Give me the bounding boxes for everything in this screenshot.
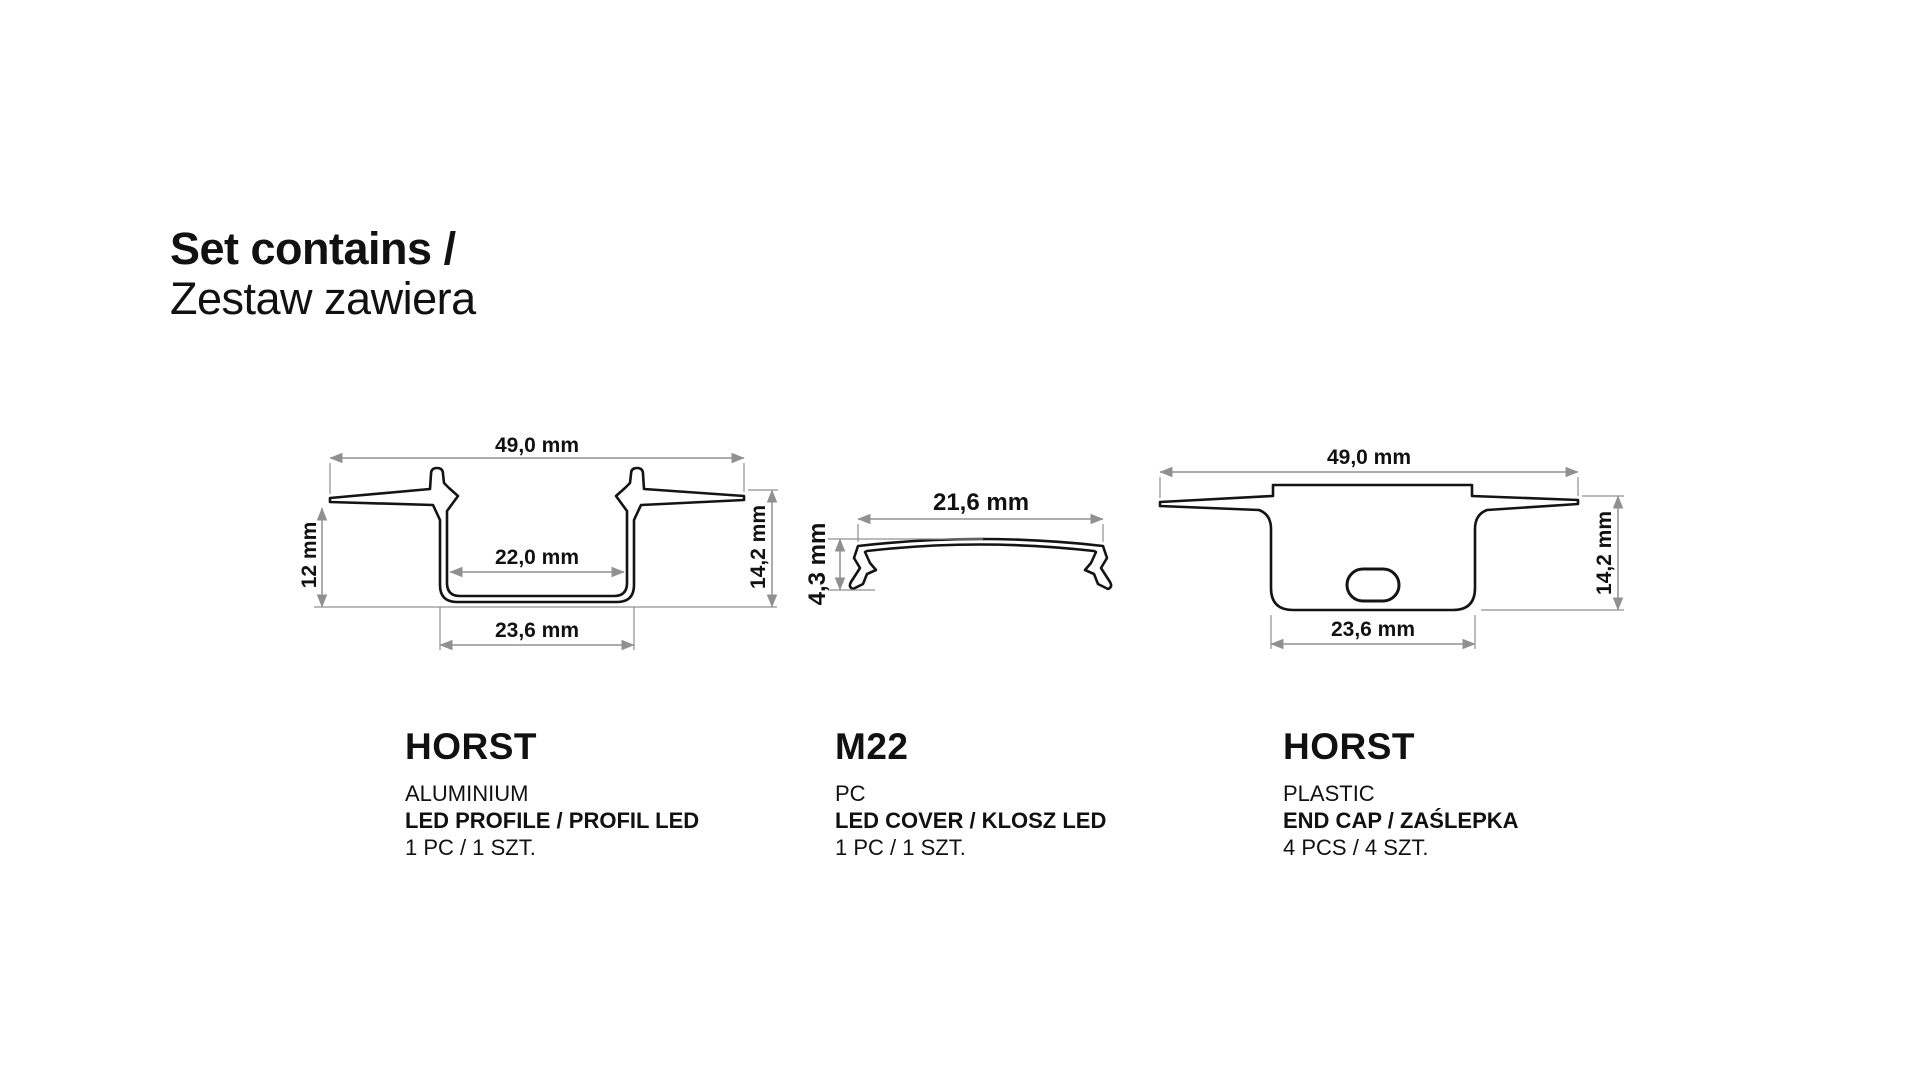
item-name: M22 — [835, 726, 1235, 768]
item-material: ALUMINIUM — [405, 780, 805, 807]
dim-label-bottom-width: 23,6 mm — [495, 619, 579, 642]
dim-label-height: 14,2 mm — [747, 505, 770, 589]
item-material: PLASTIC — [1283, 780, 1683, 807]
dim-label-width: 49,0 mm — [495, 434, 579, 457]
horst-profile-drawing: 49,0 mm 12 mm 22,0 mm 23,6 mm 14,2 mm — [300, 425, 800, 660]
item-label-endcap: HORST PLASTIC END CAP / ZAŚLEPKA 4 PCS /… — [1283, 726, 1683, 861]
dim-label-inner-width: 22,0 mm — [495, 546, 579, 569]
dim-label-depth: 12 mm — [300, 522, 321, 589]
page-title-en: Set contains / — [170, 224, 476, 274]
item-quantity: 1 PC / 1 SZT. — [835, 834, 1235, 861]
figure-horst-profile: 49,0 mm 12 mm 22,0 mm 23,6 mm 14,2 mm — [300, 425, 800, 665]
item-type: END CAP / ZAŚLEPKA — [1283, 807, 1683, 834]
figure-m22-cover: 21,6 mm 4,3 mm — [800, 430, 1150, 620]
item-quantity: 4 PCS / 4 SZT. — [1283, 834, 1683, 861]
item-material: PC — [835, 780, 1235, 807]
horst-endcap-drawing: 49,0 mm 23,6 mm 14,2 mm — [1145, 425, 1665, 660]
item-name: HORST — [405, 726, 805, 768]
item-quantity: 1 PC / 1 SZT. — [405, 834, 805, 861]
cover-cross-section — [850, 539, 1111, 589]
dim-label-width: 49,0 mm — [1327, 446, 1411, 469]
figure-horst-endcap: 49,0 mm 23,6 mm 14,2 mm — [1145, 425, 1665, 665]
item-type: LED PROFILE / PROFIL LED — [405, 807, 805, 834]
profile-cross-section — [330, 468, 744, 602]
dim-label-width: 21,6 mm — [933, 489, 1029, 516]
item-label-cover: M22 PC LED COVER / KLOSZ LED 1 PC / 1 SZ… — [835, 726, 1235, 861]
dim-label-height: 14,2 mm — [1593, 511, 1616, 595]
item-label-profile: HORST ALUMINIUM LED PROFILE / PROFIL LED… — [405, 726, 805, 861]
item-type: LED COVER / KLOSZ LED — [835, 807, 1235, 834]
dim-label-bottom-width: 23,6 mm — [1331, 618, 1415, 641]
dim-label-height: 4,3 mm — [804, 523, 831, 606]
endcap-hole — [1347, 569, 1399, 601]
page-title-pl: Zestaw zawiera — [170, 274, 476, 324]
item-name: HORST — [1283, 726, 1683, 768]
page-title: Set contains / Zestaw zawiera — [170, 224, 476, 324]
m22-cover-drawing: 21,6 mm 4,3 mm — [800, 430, 1150, 615]
